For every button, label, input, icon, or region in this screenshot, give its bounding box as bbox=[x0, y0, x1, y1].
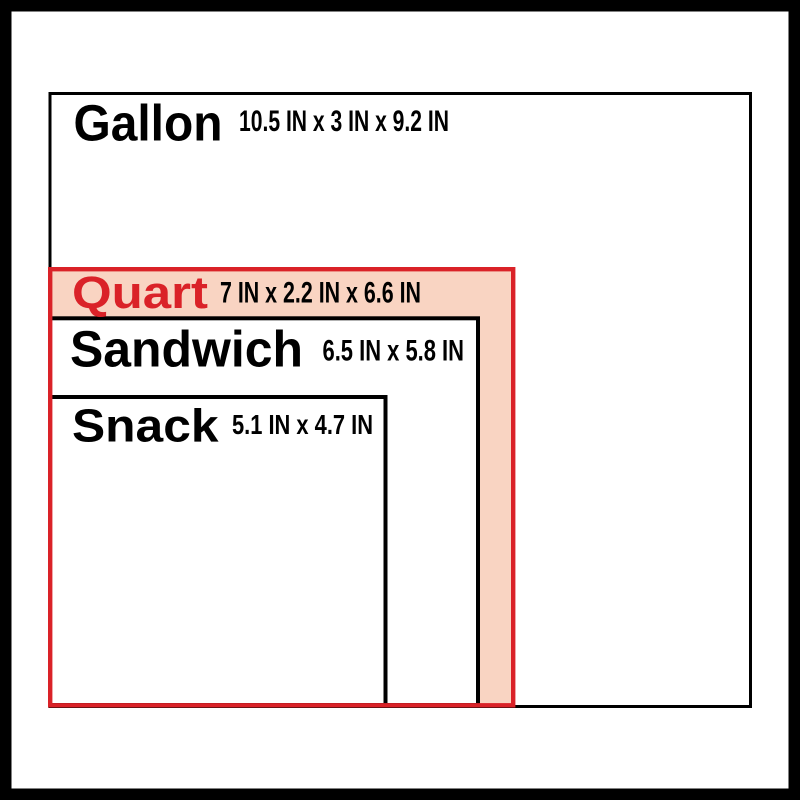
svg-text:Quart: Quart bbox=[72, 267, 208, 318]
svg-text:5.1 IN x 4.7 IN: 5.1 IN x 4.7 IN bbox=[232, 409, 373, 440]
svg-text:10.5 IN x 3 IN x 9.2 IN: 10.5 IN x 3 IN x 9.2 IN bbox=[239, 105, 449, 138]
svg-text:Gallon: Gallon bbox=[74, 95, 223, 152]
svg-text:Sandwich: Sandwich bbox=[70, 321, 303, 378]
svg-text:Snack: Snack bbox=[72, 400, 219, 452]
svg-text:7 IN x 2.2 IN x 6.6 IN: 7 IN x 2.2 IN x 6.6 IN bbox=[220, 277, 421, 310]
svg-text:6.5 IN x 5.8 IN: 6.5 IN x 5.8 IN bbox=[323, 334, 465, 367]
